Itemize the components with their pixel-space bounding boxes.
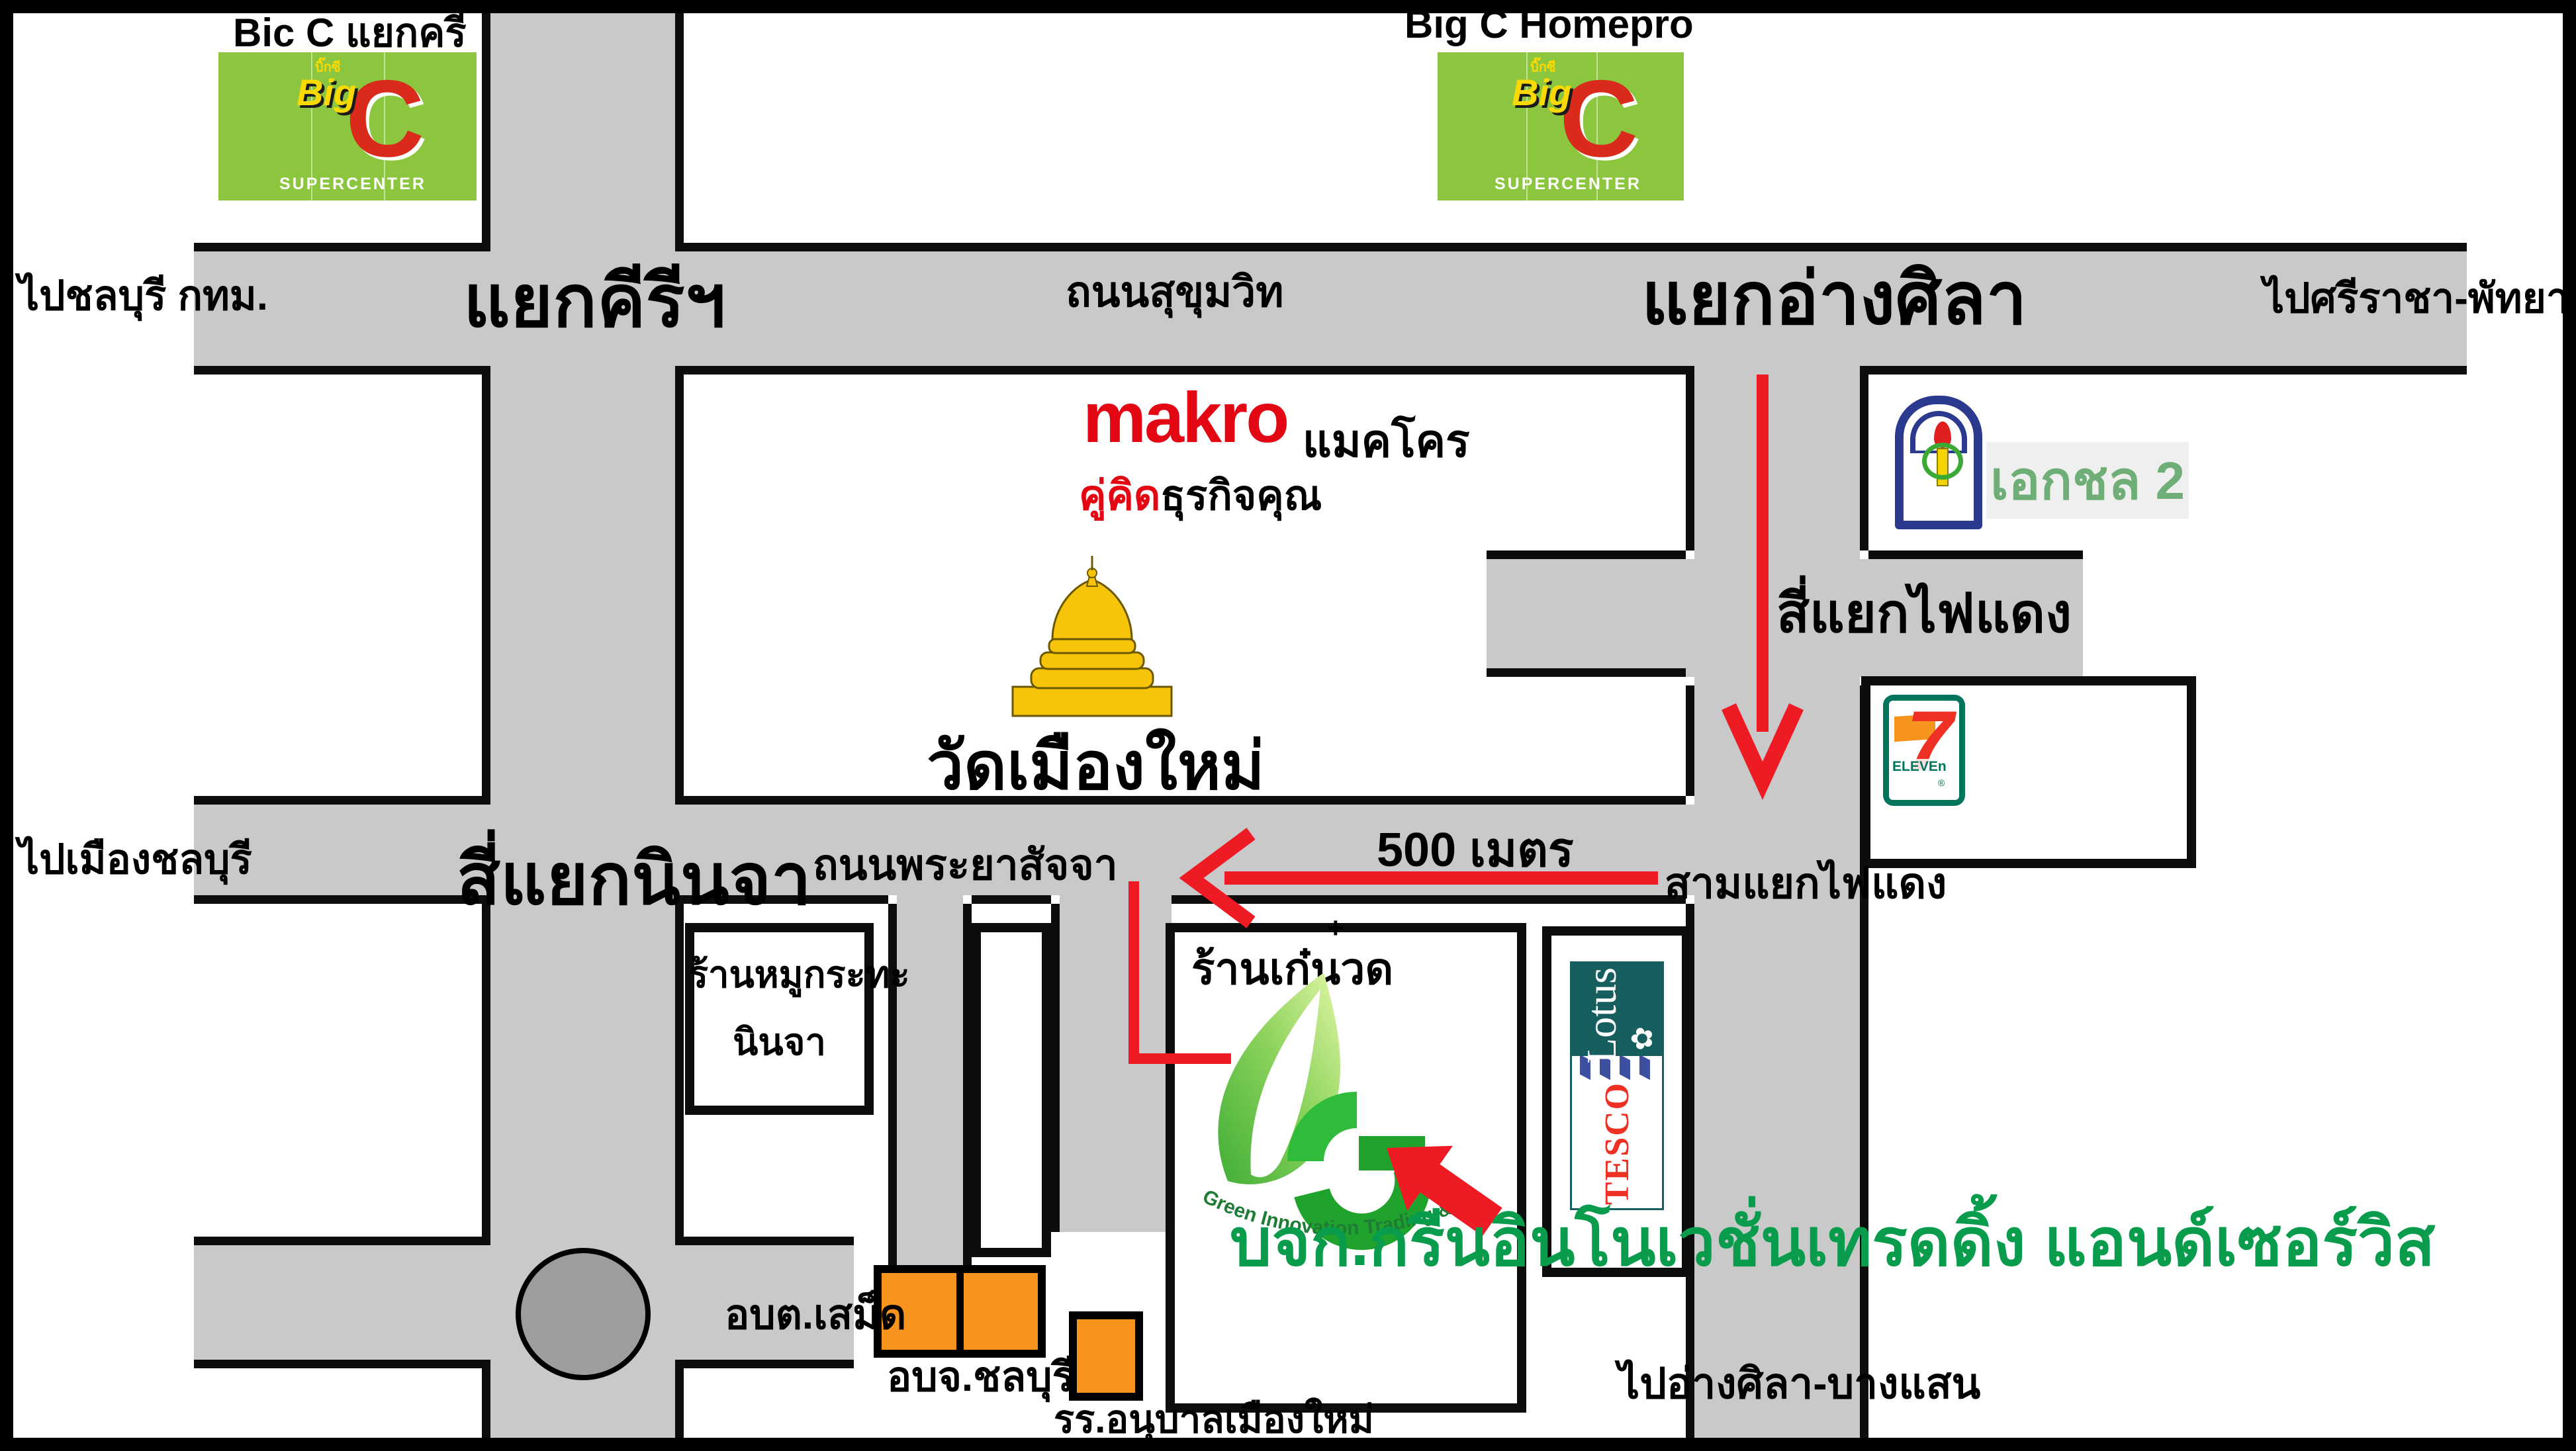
- company-name: บจก.กรีนอินโนเวชั่นเทรดดิ้ง แอนด์เซอร์วิ…: [1230, 1190, 2434, 1295]
- label-to-angsila-bangsaen: ไปอ่างศิลา-บางแสน: [1618, 1350, 1980, 1417]
- arrow-angsila-down: [1729, 374, 1796, 781]
- location-map: บิ๊กซี Big C SUPERCENTER บิ๊กซี Big C SU…: [0, 0, 2576, 1451]
- route-soi-path: [1128, 881, 1231, 1064]
- arrow-500m-left: [1191, 834, 1658, 922]
